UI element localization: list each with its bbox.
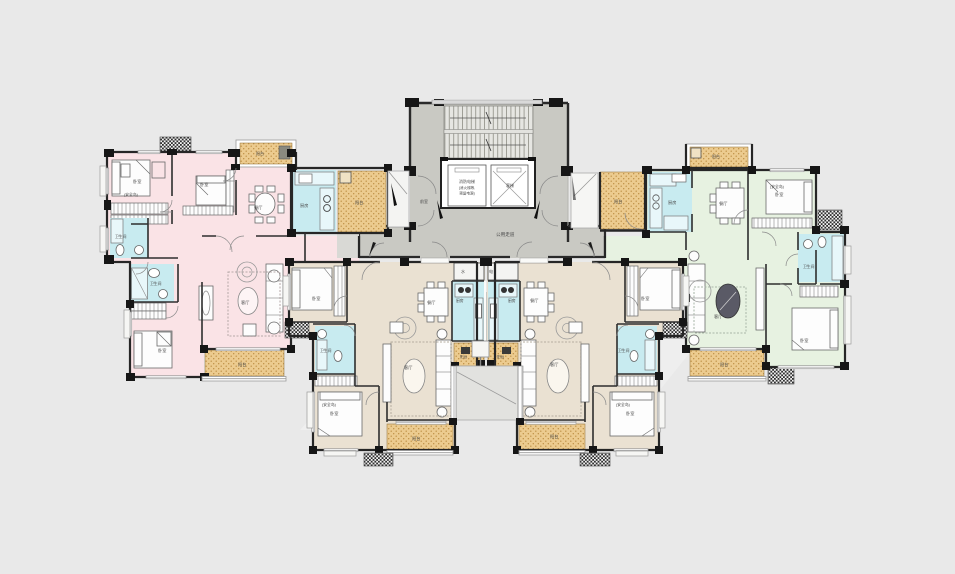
svg-text:消防电梯: 消防电梯 <box>459 178 475 184</box>
svg-text:阳台: 阳台 <box>238 361 246 368</box>
svg-text:餐厅: 餐厅 <box>427 299 435 306</box>
svg-text:卫生间: 卫生间 <box>320 348 332 353</box>
svg-text:客厅: 客厅 <box>404 364 412 371</box>
svg-text:阳台: 阳台 <box>614 198 622 205</box>
svg-text:客厅: 客厅 <box>241 299 249 306</box>
svg-text:阳台: 阳台 <box>460 354 468 359</box>
svg-text:(消火梯等,: (消火梯等, <box>459 185 476 190</box>
svg-text:前室: 前室 <box>420 198 428 204</box>
svg-text:厨房: 厨房 <box>508 298 516 303</box>
svg-text:卧室: 卧室 <box>133 178 141 185</box>
svg-text:卧室: 卧室 <box>312 295 320 302</box>
svg-text:(安全岛): (安全岛) <box>616 402 631 407</box>
svg-text:(安全岛): (安全岛) <box>770 184 785 189</box>
svg-text:卧室: 卧室 <box>775 191 783 198</box>
svg-text:卧室: 卧室 <box>800 337 808 344</box>
svg-text:卧室: 卧室 <box>200 181 208 188</box>
svg-text:餐厅: 餐厅 <box>254 204 262 211</box>
svg-text:阳台: 阳台 <box>256 150 264 156</box>
svg-text:卧室: 卧室 <box>330 410 338 417</box>
svg-text:餐厅: 餐厅 <box>719 200 727 207</box>
svg-text:餐厅: 餐厅 <box>530 297 538 304</box>
svg-text:阳台: 阳台 <box>497 354 505 359</box>
svg-text:水: 水 <box>461 268 465 274</box>
svg-text:卧室: 卧室 <box>626 410 634 417</box>
svg-text:阳台: 阳台 <box>412 435 420 442</box>
svg-text:(安全岛): (安全岛) <box>124 192 139 197</box>
svg-text:预留电源): 预留电源) <box>459 191 475 196</box>
svg-text:客厅: 客厅 <box>550 361 558 368</box>
svg-text:卫生间: 卫生间 <box>803 264 815 269</box>
svg-text:客厅: 客厅 <box>714 313 722 320</box>
svg-text:客梯: 客梯 <box>506 182 514 188</box>
svg-text:阳台: 阳台 <box>550 433 558 440</box>
svg-text:卫生间: 卫生间 <box>115 234 127 239</box>
svg-text:卫生间: 卫生间 <box>618 348 630 353</box>
svg-text:电: 电 <box>489 268 493 274</box>
svg-text:卫生间: 卫生间 <box>150 281 162 286</box>
svg-text:厨房: 厨房 <box>456 298 464 303</box>
svg-text:公用走道: 公用走道 <box>496 231 515 238</box>
svg-text:(安全岛): (安全岛) <box>322 402 337 407</box>
svg-text:厨房: 厨房 <box>668 199 676 206</box>
svg-text:阳台: 阳台 <box>720 361 728 368</box>
svg-text:卧室: 卧室 <box>641 295 649 302</box>
svg-text:阳台: 阳台 <box>355 199 363 206</box>
svg-text:厨房: 厨房 <box>300 202 308 209</box>
svg-text:阳台: 阳台 <box>712 153 720 159</box>
svg-text:卧室: 卧室 <box>158 347 166 354</box>
